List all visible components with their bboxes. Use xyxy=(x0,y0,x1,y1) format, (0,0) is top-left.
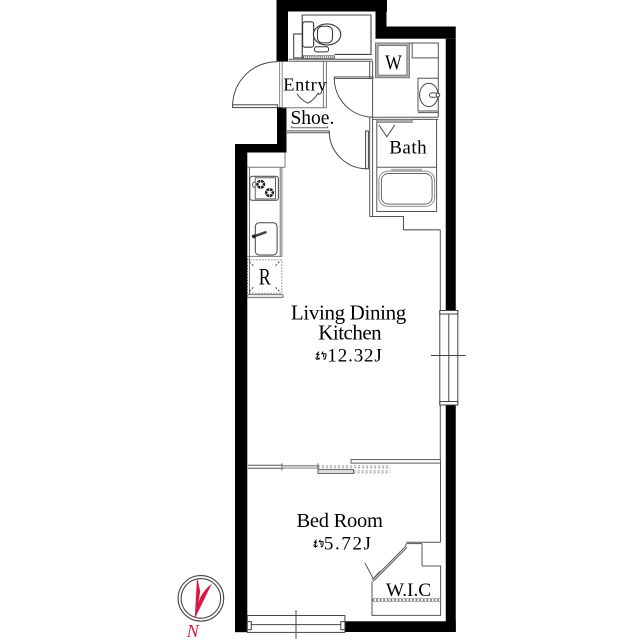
svg-text:12.32J: 12.32J xyxy=(327,346,382,367)
svg-text:Bed Room: Bed Room xyxy=(296,510,383,532)
svg-text:Kitchen: Kitchen xyxy=(318,321,382,345)
svg-text:Shoe.: Shoe. xyxy=(290,108,334,129)
svg-text:W: W xyxy=(385,52,402,75)
svg-text:W.I.C: W.I.C xyxy=(386,580,431,601)
svg-text:Bath: Bath xyxy=(389,137,427,158)
svg-text:R: R xyxy=(259,266,271,291)
svg-text:Entry: Entry xyxy=(283,75,327,95)
svg-text:N: N xyxy=(186,621,200,640)
svg-text:5.72J: 5.72J xyxy=(324,534,373,555)
